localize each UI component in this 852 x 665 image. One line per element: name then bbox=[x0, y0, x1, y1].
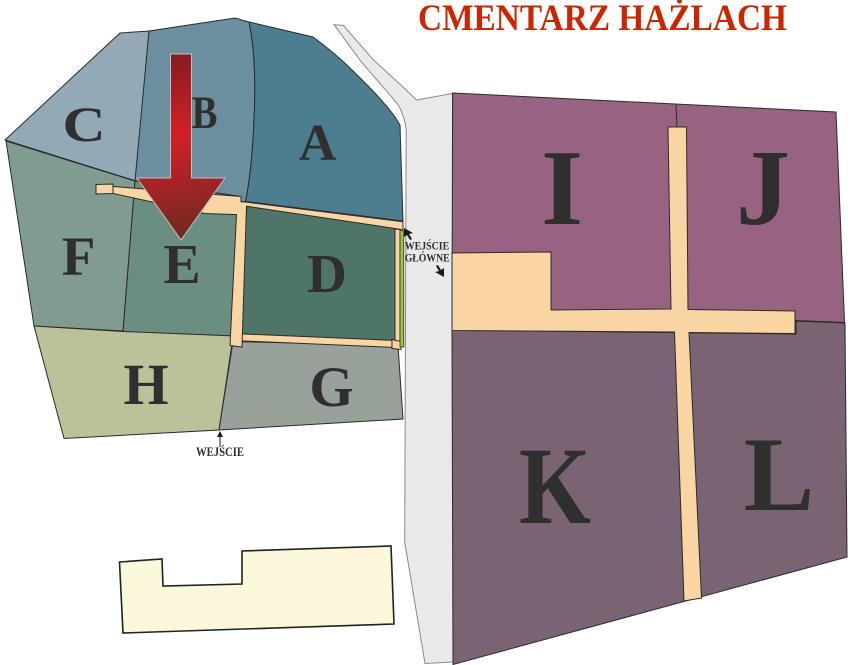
svg-text:E: E bbox=[163, 234, 200, 296]
svg-text:K: K bbox=[519, 425, 591, 547]
svg-text:L: L bbox=[744, 416, 815, 533]
svg-text:F: F bbox=[62, 226, 96, 287]
svg-text:H: H bbox=[123, 352, 168, 417]
svg-text:WEJŚCIE: WEJŚCIE bbox=[405, 239, 450, 253]
svg-text:I: I bbox=[541, 129, 583, 248]
svg-text:D: D bbox=[307, 243, 347, 304]
svg-text:C: C bbox=[63, 96, 106, 152]
svg-text:A: A bbox=[299, 115, 337, 172]
svg-text:B: B bbox=[192, 87, 218, 139]
svg-text:G: G bbox=[309, 356, 353, 419]
svg-text:CMENTARZ HAŻLACH: CMENTARZ HAŻLACH bbox=[418, 0, 787, 39]
svg-text:WEJŚCIE: WEJŚCIE bbox=[196, 445, 244, 459]
svg-text:GŁÓWNE: GŁÓWNE bbox=[405, 251, 450, 265]
svg-text:J: J bbox=[736, 129, 790, 248]
